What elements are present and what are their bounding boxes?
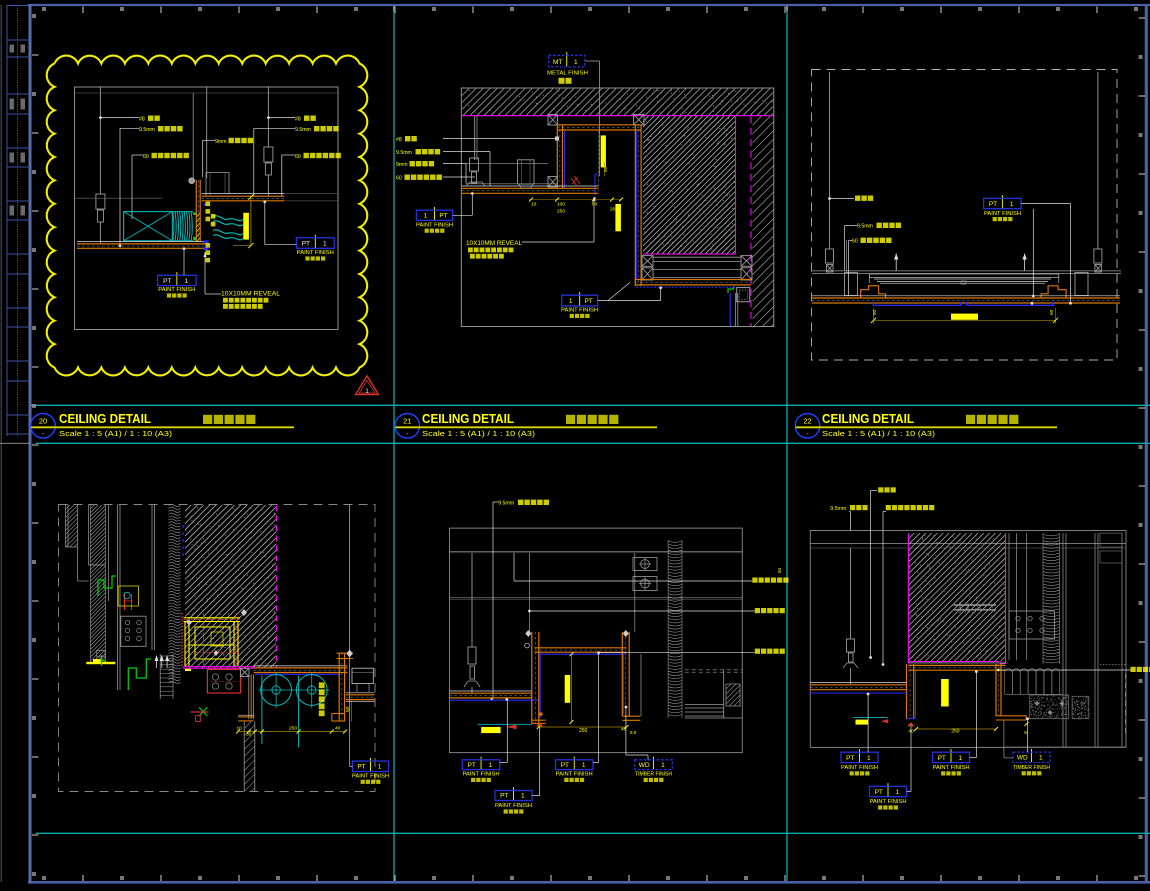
svg-text:22: 22: [803, 416, 811, 425]
svg-text:60: 60: [852, 239, 858, 245]
svg-text:CEILING DETAIL: CEILING DETAIL: [822, 412, 914, 426]
svg-text:PT: PT: [468, 762, 476, 769]
svg-text:1: 1: [582, 762, 586, 769]
svg-text:PAINT FINISH: PAINT FINISH: [416, 222, 453, 228]
svg-text:PT: PT: [357, 764, 365, 771]
svg-text:PT: PT: [938, 755, 946, 762]
svg-text:10X10MM REVEAL: 10X10MM REVEAL: [466, 241, 523, 247]
svg-text:Scale 1 : 5 (A1) / 1 : 10 (A3): Scale 1 : 5 (A1) / 1 : 10 (A3): [59, 429, 172, 438]
svg-text:9.5mm: 9.5mm: [830, 506, 846, 512]
svg-text:30: 30: [246, 732, 252, 738]
svg-text:CEILING DETAIL: CEILING DETAIL: [422, 412, 514, 426]
svg-text:CEILING DETAIL: CEILING DETAIL: [59, 412, 151, 426]
svg-text:PAINT FINISH: PAINT FINISH: [495, 803, 532, 809]
svg-text:1: 1: [489, 762, 493, 769]
svg-text:21: 21: [403, 416, 411, 425]
svg-text:50: 50: [1049, 309, 1055, 315]
svg-text:1: 1: [574, 59, 578, 66]
svg-text:50: 50: [345, 706, 351, 712]
svg-text:PAINT FINISH: PAINT FINISH: [933, 765, 970, 771]
svg-text:PAINT FINISH: PAINT FINISH: [561, 308, 598, 314]
svg-text:9.5mm: 9.5mm: [857, 224, 873, 230]
svg-text:TIMBER FINISH: TIMBER FINISH: [1013, 765, 1050, 771]
svg-text:20: 20: [39, 416, 47, 425]
svg-text:1: 1: [521, 793, 525, 800]
svg-text:250: 250: [951, 729, 960, 735]
svg-text:Scale 1 : 5 (A1) / 1 : 10 (A3): Scale 1 : 5 (A1) / 1 : 10 (A3): [422, 429, 535, 438]
svg-text:250: 250: [557, 209, 565, 215]
svg-text:WD: WD: [1017, 755, 1028, 762]
svg-text:#8: #8: [295, 117, 301, 123]
svg-text:1: 1: [185, 278, 189, 285]
svg-text:PT: PT: [561, 762, 569, 769]
svg-text:60: 60: [143, 154, 149, 160]
svg-text:5: 5: [1024, 730, 1027, 736]
svg-text:PT: PT: [302, 241, 310, 248]
svg-text:50: 50: [592, 202, 598, 208]
svg-text:40: 40: [335, 726, 341, 732]
svg-text:1: 1: [661, 762, 665, 769]
svg-text:PAINT FINISH: PAINT FINISH: [463, 772, 500, 778]
svg-text:9.5mm: 9.5mm: [139, 127, 155, 133]
svg-text:1: 1: [1039, 755, 1043, 762]
svg-text:50: 50: [603, 166, 609, 172]
svg-text:10: 10: [237, 726, 243, 732]
svg-text:100: 100: [557, 202, 565, 208]
svg-text:MT: MT: [553, 59, 562, 66]
svg-text:PAINT FINISH: PAINT FINISH: [352, 774, 389, 780]
svg-text:#8: #8: [139, 117, 145, 123]
svg-text:10: 10: [531, 202, 537, 208]
svg-text:250: 250: [579, 728, 588, 734]
svg-text:PT: PT: [163, 278, 171, 285]
svg-text:9.5mm: 9.5mm: [498, 501, 514, 507]
svg-text:PAINT FINISH: PAINT FINISH: [297, 250, 334, 256]
svg-text:1: 1: [895, 789, 899, 796]
svg-text:9mm: 9mm: [396, 162, 408, 168]
svg-text:PT: PT: [875, 789, 883, 796]
svg-text:#8: #8: [396, 137, 402, 143]
svg-text:PAINT FINISH: PAINT FINISH: [158, 287, 195, 293]
svg-text:1: 1: [424, 213, 428, 220]
svg-text:1: 1: [867, 755, 871, 762]
svg-text:60: 60: [295, 154, 301, 160]
svg-text:WD: WD: [639, 762, 650, 769]
svg-text:-: -: [42, 432, 44, 438]
svg-text:TIMBER FINISH: TIMBER FINISH: [635, 772, 672, 778]
svg-text:1: 1: [569, 298, 573, 305]
svg-text:50: 50: [777, 567, 782, 573]
svg-text:-: -: [406, 432, 408, 438]
svg-text:9.5mm: 9.5mm: [396, 150, 412, 156]
svg-text:PT: PT: [584, 298, 592, 305]
svg-text:Scale 1 : 5 (A1) / 1 : 10 (A3): Scale 1 : 5 (A1) / 1 : 10 (A3): [822, 429, 935, 438]
svg-text:PT: PT: [500, 793, 508, 800]
svg-text:20: 20: [610, 207, 616, 213]
svg-text:1: 1: [378, 764, 382, 771]
svg-text:1: 1: [1010, 201, 1014, 208]
svg-text:PAINT FINISH: PAINT FINISH: [870, 799, 907, 805]
svg-text:-: -: [807, 432, 809, 438]
svg-text:1: 1: [365, 388, 369, 395]
svg-text:10X10MM REVEAL: 10X10MM REVEAL: [221, 292, 281, 298]
svg-text:PT: PT: [846, 755, 854, 762]
svg-text:METAL FINISH: METAL FINISH: [547, 71, 588, 77]
svg-text:5.5: 5.5: [630, 730, 637, 735]
svg-text:50: 50: [872, 309, 878, 315]
svg-text:PAINT FINISH: PAINT FINISH: [841, 765, 878, 771]
svg-text:9.5mm: 9.5mm: [295, 127, 311, 133]
svg-text:PT: PT: [439, 213, 447, 220]
svg-text:PAINT FINISH: PAINT FINISH: [984, 211, 1021, 217]
svg-text:60: 60: [396, 176, 402, 182]
svg-text:9mm: 9mm: [215, 139, 227, 145]
svg-text:PAINT FINISH: PAINT FINISH: [556, 772, 593, 778]
svg-text:1: 1: [323, 241, 327, 248]
svg-text:1: 1: [958, 755, 962, 762]
svg-text:250: 250: [289, 726, 297, 732]
svg-text:PT: PT: [989, 201, 997, 208]
